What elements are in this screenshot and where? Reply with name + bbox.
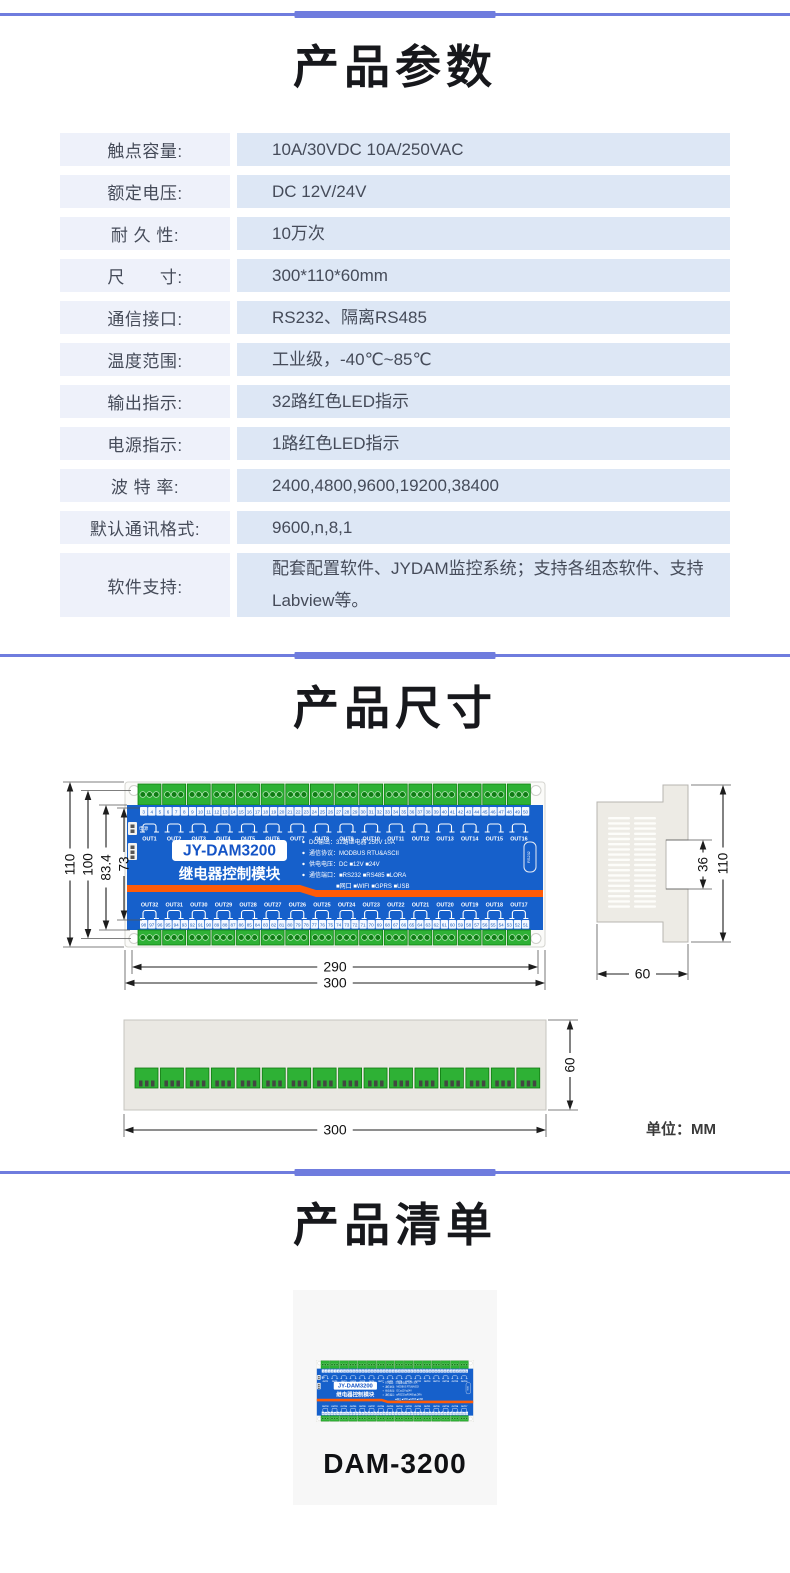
terminal-number: 8 <box>183 810 186 815</box>
param-value: 1路红色LED指示 <box>237 427 730 460</box>
terminal-number: 13 <box>353 1371 355 1373</box>
mounting-hole <box>469 1361 473 1365</box>
terminal-number: 44 <box>447 1371 449 1373</box>
channel-label: OUT31 <box>165 903 182 909</box>
channel-label: OUT25 <box>313 903 330 909</box>
terminal-number: 71 <box>361 923 367 928</box>
terminal-number: 65 <box>409 923 415 928</box>
terminal-number: 31 <box>369 810 375 815</box>
channel-label: OUT13 <box>436 837 453 843</box>
terminal-number: 74 <box>395 1413 397 1415</box>
terminal-number: 81 <box>374 1413 376 1415</box>
param-label: 波 特 率: <box>60 469 230 502</box>
terminal-number: 93 <box>182 923 188 928</box>
terminal-number: 82 <box>271 923 277 928</box>
channel-label: OUT25 <box>387 1406 394 1408</box>
channel-label: OUT7 <box>290 837 304 843</box>
divider-accent-bar <box>295 652 496 659</box>
terminal-number: 38 <box>429 1371 431 1373</box>
terminal-number: 33 <box>385 810 391 815</box>
param-row: 触点容量:10A/30VDC 10A/250VAC <box>60 133 730 166</box>
terminal-number: 58 <box>444 1413 446 1415</box>
param-label: 耐 久 性: <box>60 217 230 250</box>
terminal-number: 85 <box>362 1413 364 1415</box>
mounting-hole <box>469 1417 473 1421</box>
param-value: 工业级，-40℃~85℃ <box>237 343 730 376</box>
dimension-label: 60 <box>563 1057 578 1072</box>
module-spec-line: 通信协议：MODBUS RTU&ASCII <box>309 849 399 857</box>
terminal-number: 57 <box>447 1413 449 1415</box>
terminal-number: 6 <box>167 810 170 815</box>
terminal-number: 84 <box>255 923 261 928</box>
product-thumbnail-svg: 3456789101112131415161718192021222324252… <box>316 1360 474 1422</box>
terminal-number: 16 <box>362 1371 364 1373</box>
terminal-number: 66 <box>420 1413 422 1415</box>
terminal-number: 50 <box>523 810 529 815</box>
product-photo: 3456789101112131415161718192021222324252… <box>293 1360 497 1422</box>
terminal-number: 57 <box>474 923 480 928</box>
param-label: 触点容量: <box>60 133 230 166</box>
terminal-number: 9 <box>341 1371 342 1373</box>
channel-label: OUT27 <box>264 903 281 909</box>
side-view: 1103660 <box>597 785 731 982</box>
terminal-number: 10 <box>198 810 204 815</box>
bottom-view: 60300单位：MM <box>124 1020 716 1138</box>
terminal-number: 48 <box>507 810 513 815</box>
terminal-number: 20 <box>279 810 285 815</box>
divider-accent-bar <box>295 1169 496 1176</box>
channel-label: OUT32 <box>322 1406 329 1408</box>
terminal-number: 77 <box>312 923 318 928</box>
terminal-number: 42 <box>458 810 464 815</box>
mounting-hole <box>318 1417 322 1421</box>
terminal-number: 80 <box>287 923 293 928</box>
channel-label: OUT27 <box>368 1406 375 1408</box>
terminal-number: 27 <box>336 810 342 815</box>
terminal-number: 8 <box>338 1371 339 1373</box>
mounting-hole <box>531 786 541 796</box>
terminal-number: 83 <box>368 1413 370 1415</box>
terminal-number: 4 <box>151 810 154 815</box>
terminal-number: 28 <box>344 810 350 815</box>
param-label: 默认通讯格式: <box>60 511 230 544</box>
terminal-number: 85 <box>247 923 253 928</box>
terminal-number: 32 <box>411 1371 413 1373</box>
channel-label: OUT18 <box>486 903 503 909</box>
terminal-number: 22 <box>380 1371 382 1373</box>
terminal-number: 54 <box>456 1413 458 1415</box>
side-profile <box>597 785 688 942</box>
terminal-number: 76 <box>389 1413 391 1415</box>
terminal-number: 72 <box>352 923 358 928</box>
terminal-number: 21 <box>287 810 293 815</box>
channel-label: OUT28 <box>359 1406 366 1408</box>
terminal-number: 81 <box>279 923 285 928</box>
terminal-number: 7 <box>335 1371 336 1373</box>
channel-label: OUT14 <box>461 837 478 843</box>
module-spec-line: 供电电压：DC ■12V ■24V <box>309 860 380 868</box>
dimensions-section-title: 产品尺寸 <box>0 685 790 731</box>
terminal-number: 6 <box>332 1371 333 1373</box>
terminal-number: 39 <box>434 810 440 815</box>
dimension-label: 100 <box>81 853 96 876</box>
channel-label: OUT21 <box>412 903 429 909</box>
terminal-number: 21 <box>377 1371 379 1373</box>
terminal-number: 24 <box>386 1371 388 1373</box>
terminal-number: 29 <box>402 1371 404 1373</box>
terminal-number: 88 <box>353 1413 355 1415</box>
terminal-number: 63 <box>429 1413 431 1415</box>
params-table: 触点容量:10A/30VDC 10A/250VAC额定电压:DC 12V/24V… <box>60 133 730 617</box>
terminal-number: 48 <box>460 1371 462 1373</box>
dimension-label: 300 <box>323 1122 347 1138</box>
terminal-number: 24 <box>312 810 318 815</box>
terminal-number: 36 <box>409 810 415 815</box>
param-row: 额定电压:DC 12V/24V <box>60 175 730 208</box>
terminal-number: 14 <box>356 1371 358 1373</box>
param-value: 300*110*60mm <box>237 259 730 292</box>
channel-label: OUT28 <box>239 903 256 909</box>
terminal-number: 45 <box>482 810 488 815</box>
terminal-number: 78 <box>304 923 310 928</box>
mounting-hole <box>531 934 541 944</box>
terminal-number: 98 <box>141 923 147 928</box>
terminal-number: 35 <box>401 810 407 815</box>
terminal-number: 71 <box>405 1413 407 1415</box>
terminal-number: 9 <box>191 810 194 815</box>
terminal-number: 43 <box>444 1371 446 1373</box>
terminal-number: 5 <box>159 810 162 815</box>
channel-label: OUT17 <box>510 903 527 909</box>
terminal-number: 82 <box>371 1413 373 1415</box>
terminal-number: 63 <box>426 923 432 928</box>
terminal-number: 91 <box>198 923 204 928</box>
terminal-number: 30 <box>361 810 367 815</box>
terminal-number: 55 <box>453 1413 455 1415</box>
terminal-number: 98 <box>322 1413 324 1415</box>
front-view: 3456789101112131415161718192021222324252… <box>63 782 546 991</box>
channel-label: OUT26 <box>378 1406 385 1408</box>
channel-label: OUT12 <box>412 837 429 843</box>
terminal-number: 73 <box>398 1413 400 1415</box>
channel-label: OUT16 <box>510 837 527 843</box>
module-spec-line: ■网口 ■WIFI ■GPRS ■USB <box>336 883 410 890</box>
param-value: 9600,n,8,1 <box>237 511 730 544</box>
terminal-number: 23 <box>383 1371 385 1373</box>
terminal-number: 46 <box>453 1371 455 1373</box>
terminal-number: 37 <box>426 1371 428 1373</box>
terminal-number: 40 <box>442 810 448 815</box>
param-value: 2400,4800,9600,19200,38400 <box>237 469 730 502</box>
terminal-number: 43 <box>466 810 472 815</box>
mounting-hole <box>318 1361 322 1365</box>
terminal-number: 60 <box>438 1413 440 1415</box>
terminal-number: 84 <box>365 1413 367 1415</box>
terminal-number: 69 <box>377 923 383 928</box>
terminal-number: 78 <box>383 1413 385 1415</box>
param-label: 额定电压: <box>60 175 230 208</box>
terminal-number: 75 <box>392 1413 394 1415</box>
param-label: 尺 寸: <box>60 259 230 292</box>
param-label: 输出指示: <box>60 385 230 418</box>
terminal-number: 70 <box>369 923 375 928</box>
terminal-number: 25 <box>389 1371 391 1373</box>
terminal-number: 29 <box>352 810 358 815</box>
dimension-label: 60 <box>635 966 651 982</box>
terminal-number: 33 <box>414 1371 416 1373</box>
terminal-number: 86 <box>239 923 245 928</box>
terminal-number: 83 <box>263 923 269 928</box>
channel-label: OUT30 <box>341 1406 348 1408</box>
param-row: 通信接口:RS232、隔离RS485 <box>60 301 730 334</box>
product-card: 3456789101112131415161718192021222324252… <box>293 1290 497 1505</box>
terminal-number: 23 <box>304 810 310 815</box>
param-row: 软件支持:配套配置软件、JYDAM监控系统；支持各组态软件、支持Labview等… <box>60 553 730 617</box>
terminal-number: 20 <box>374 1371 376 1373</box>
terminal-number: 97 <box>325 1413 327 1415</box>
terminal-number: 12 <box>350 1371 352 1373</box>
terminal-number: 55 <box>491 923 497 928</box>
channel-label: OUT19 <box>461 903 478 909</box>
param-row: 默认通讯格式:9600,n,8,1 <box>60 511 730 544</box>
channel-label: OUT15 <box>486 837 503 843</box>
terminal-number: 87 <box>231 923 237 928</box>
terminal-number: 37 <box>417 810 423 815</box>
terminal-number: 11 <box>206 810 211 815</box>
channel-label: OUT30 <box>190 903 207 909</box>
terminal-number: 18 <box>263 810 269 815</box>
terminal-number: 79 <box>380 1413 382 1415</box>
section-divider-params <box>0 13 790 16</box>
terminal-number: 39 <box>432 1371 434 1373</box>
terminal-number: 26 <box>328 810 334 815</box>
terminal-number: 19 <box>371 1371 373 1373</box>
terminal-number: 96 <box>328 1413 330 1415</box>
terminal-number: 25 <box>320 810 326 815</box>
terminal-number: 12 <box>214 810 220 815</box>
terminal-number: 52 <box>515 923 521 928</box>
terminal-number: 93 <box>337 1413 339 1415</box>
channel-label: OUT20 <box>433 1406 440 1408</box>
dimension-label: 36 <box>696 857 711 872</box>
channel-label: OUT13 <box>433 1381 440 1383</box>
terminal-number: 50 <box>466 1371 468 1373</box>
channel-label: OUT26 <box>289 903 306 909</box>
terminal-number: 17 <box>365 1371 367 1373</box>
param-row: 尺 寸:300*110*60mm <box>60 259 730 292</box>
terminal-number: 73 <box>344 923 350 928</box>
terminal-number: 31 <box>408 1371 410 1373</box>
channel-label: OUT24 <box>338 903 355 909</box>
channel-label: OUT21 <box>424 1406 431 1408</box>
unit-note: 单位：MM <box>646 1120 716 1138</box>
product-name: DAM-3200 <box>293 1448 497 1480</box>
terminal-number: 72 <box>402 1413 404 1415</box>
terminal-number: 15 <box>239 810 245 815</box>
terminal-number: 53 <box>507 923 513 928</box>
terminal-number: 62 <box>434 923 440 928</box>
terminal-number: 95 <box>166 923 172 928</box>
model-text: JY-DAM3200 <box>183 843 276 860</box>
terminal-number: 42 <box>441 1371 443 1373</box>
dimension-label: 110 <box>63 854 78 876</box>
param-row: 电源指示:1路红色LED指示 <box>60 427 730 460</box>
power-connector <box>317 1375 320 1380</box>
terminal-number: 90 <box>206 923 212 928</box>
terminal-number: 17 <box>255 810 261 815</box>
terminal-number: 77 <box>386 1413 388 1415</box>
terminal-number: 92 <box>190 923 196 928</box>
channel-label: OUT18 <box>452 1406 459 1408</box>
model-text: JY-DAM3200 <box>338 1384 373 1390</box>
terminal-number: 64 <box>426 1413 428 1415</box>
power-connector <box>128 822 137 835</box>
terminal-number: 60 <box>450 923 456 928</box>
terminal-number: 44 <box>474 810 480 815</box>
channel-label: OUT1 <box>323 1381 329 1383</box>
terminal-number: 89 <box>350 1413 352 1415</box>
terminal-number: 35 <box>420 1371 422 1373</box>
terminal-number: 3 <box>142 810 145 815</box>
terminal-number: 40 <box>435 1371 437 1373</box>
terminal-number: 67 <box>393 923 399 928</box>
terminal-number: 68 <box>414 1413 416 1415</box>
param-value: DC 12V/24V <box>237 175 730 208</box>
param-value: RS232、隔离RS485 <box>237 301 730 334</box>
list-section-title: 产品清单 <box>0 1202 790 1248</box>
channel-label: OUT31 <box>331 1406 338 1408</box>
terminal-number: 34 <box>417 1371 419 1373</box>
terminal-number: 32 <box>377 810 383 815</box>
terminal-number: 22 <box>296 810 302 815</box>
param-row: 温度范围:工业级，-40℃~85℃ <box>60 343 730 376</box>
bottom-profile <box>124 1020 546 1110</box>
terminal-number: 5 <box>329 1371 330 1373</box>
terminal-number: 15 <box>359 1371 361 1373</box>
terminal-number: 96 <box>157 923 163 928</box>
terminal-number: 30 <box>405 1371 407 1373</box>
terminal-number: 54 <box>499 923 505 928</box>
terminal-number: 88 <box>222 923 228 928</box>
terminal-number: 49 <box>515 810 521 815</box>
terminal-number: 59 <box>441 1413 443 1415</box>
channel-label: OUT22 <box>415 1406 422 1408</box>
dimension-drawing-svg: 3456789101112131415161718192021222324252… <box>0 762 790 1162</box>
terminal-number: 10 <box>344 1371 346 1373</box>
terminal-number: 51 <box>523 923 529 928</box>
terminal-number: 11 <box>347 1371 349 1373</box>
terminal-number: 4 <box>326 1371 327 1373</box>
terminal-number: 59 <box>458 923 464 928</box>
param-value: 10A/30VDC 10A/250VAC <box>237 133 730 166</box>
terminal-number: 47 <box>456 1371 458 1373</box>
terminal-number: 67 <box>417 1413 419 1415</box>
param-row: 波 特 率:2400,4800,9600,19200,38400 <box>60 469 730 502</box>
terminal-number: 80 <box>377 1413 379 1415</box>
param-value: 10万次 <box>237 217 730 250</box>
terminal-number: 69 <box>411 1413 413 1415</box>
terminal-number: 34 <box>393 810 399 815</box>
dimension-label: 83.4 <box>99 854 114 881</box>
channel-label: OUT22 <box>387 903 404 909</box>
channel-label: OUT12 <box>424 1381 431 1383</box>
terminal-number: 41 <box>438 1371 440 1373</box>
param-row: 输出指示:32路红色LED指示 <box>60 385 730 418</box>
channel-label: OUT32 <box>141 903 158 909</box>
terminal-number: 16 <box>247 810 253 815</box>
terminal-number: 14 <box>231 810 237 815</box>
terminal-number: 26 <box>392 1371 394 1373</box>
dimension-label: 73 <box>117 856 132 871</box>
dimension-drawing: 3456789101112131415161718192021222324252… <box>0 762 790 1162</box>
channel-label: OUT19 <box>442 1406 449 1408</box>
terminal-number: 64 <box>417 923 423 928</box>
param-value: 32路红色LED指示 <box>237 385 730 418</box>
terminal-number: 97 <box>149 923 155 928</box>
module-subtitle: 继电器控制模块 <box>179 865 281 883</box>
terminal-number: 95 <box>331 1413 333 1415</box>
channel-label: OUT23 <box>362 903 379 909</box>
terminal-number: 92 <box>340 1413 342 1415</box>
terminal-number: 49 <box>463 1371 465 1373</box>
terminal-number: 79 <box>296 923 302 928</box>
terminal-number: 94 <box>174 923 180 928</box>
param-row: 耐 久 性:10万次 <box>60 217 730 250</box>
terminal-number: 52 <box>463 1413 465 1415</box>
terminal-number: 56 <box>482 923 488 928</box>
terminal-number: 7 <box>175 810 178 815</box>
channel-label: OUT15 <box>452 1381 459 1383</box>
divider-accent-bar <box>295 11 496 18</box>
power-label: 电源 <box>139 825 149 832</box>
terminal-number: 76 <box>320 923 326 928</box>
terminal-number: 70 <box>408 1413 410 1415</box>
dimension-label: 290 <box>323 959 347 975</box>
channel-label: OUT29 <box>350 1406 357 1408</box>
terminal-number: 41 <box>450 810 456 815</box>
channel-label: OUT29 <box>215 903 232 909</box>
terminal-number: 13 <box>222 810 228 815</box>
channel-label: OUT17 <box>461 1406 468 1408</box>
dimension-label: 110 <box>716 853 731 875</box>
section-divider-list <box>0 1171 790 1174</box>
module-spec-line: DO输出：32路继电器 250V 10A <box>309 838 395 846</box>
terminal-number: 68 <box>385 923 391 928</box>
param-label: 温度范围: <box>60 343 230 376</box>
terminal-number: 61 <box>435 1413 437 1415</box>
terminal-number: 65 <box>423 1413 425 1415</box>
channel-label: OUT1 <box>142 837 156 843</box>
terminal-number: 51 <box>466 1413 468 1415</box>
module-spec-line: 通信端口：■RS232 ■RS485 ■LORA <box>309 871 406 879</box>
dimension-label: 300 <box>323 975 347 991</box>
terminal-number: 66 <box>401 923 407 928</box>
port-label: RS232 <box>527 851 531 863</box>
section-divider-dimensions <box>0 654 790 657</box>
terminal-number: 19 <box>271 810 277 815</box>
terminal-number: 58 <box>466 923 472 928</box>
terminal-number: 86 <box>359 1413 361 1415</box>
terminal-number: 36 <box>423 1371 425 1373</box>
param-label: 软件支持: <box>60 553 230 617</box>
param-value: 配套配置软件、JYDAM监控系统；支持各组态软件、支持Labview等。 <box>237 553 730 617</box>
terminal-number: 87 <box>356 1413 358 1415</box>
channel-label: OUT20 <box>436 903 453 909</box>
terminal-number: 45 <box>450 1371 452 1373</box>
terminal-number: 75 <box>328 923 334 928</box>
terminal-number: 18 <box>368 1371 370 1373</box>
terminal-number: 38 <box>426 810 432 815</box>
